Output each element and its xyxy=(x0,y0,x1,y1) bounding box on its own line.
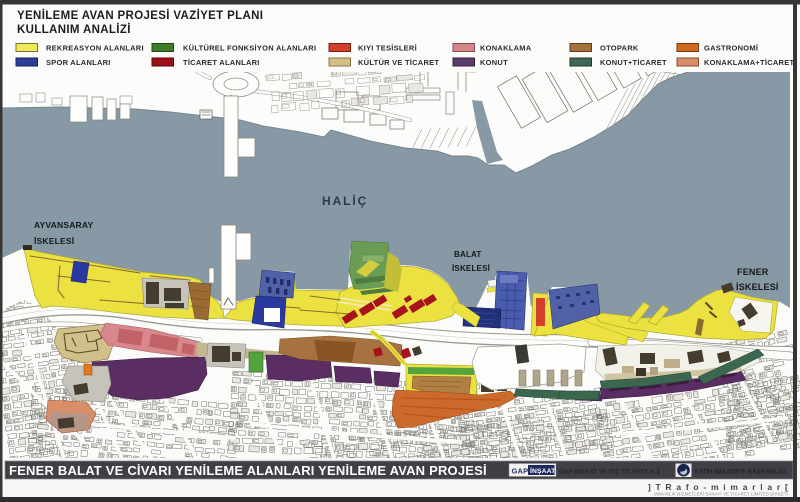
svg-text:KONUT: KONUT xyxy=(480,58,508,67)
svg-text:BALAT: BALAT xyxy=(454,250,482,259)
svg-text:KULLANIM ANALİZİ: KULLANIM ANALİZİ xyxy=(17,23,131,36)
svg-text:İNŞAAT: İNŞAAT xyxy=(530,467,556,475)
svg-text:FATİH BELEDİYE BAŞKANLIĞI: FATİH BELEDİYE BAŞKANLIĞI xyxy=(695,468,787,476)
svg-text:İSKELESİ: İSKELESİ xyxy=(452,264,490,273)
svg-text:GAP İNŞAAT VE DIŞ TİCARET A.Ş: GAP İNŞAAT VE DIŞ TİCARET A.Ş xyxy=(559,469,660,476)
svg-text:İSKELESİ: İSKELESİ xyxy=(736,282,779,292)
svg-text:TİCARET ALANLARI: TİCARET ALANLARI xyxy=(183,58,260,67)
svg-text:KÜLTÜR VE TİCARET: KÜLTÜR VE TİCARET xyxy=(358,58,439,67)
svg-text:KONAKLAMA: KONAKLAMA xyxy=(480,44,532,53)
svg-text:KONAKLAMA+TİCARET: KONAKLAMA+TİCARET xyxy=(704,58,794,67)
svg-text:YENİLEME AVAN PROJESİ VAZİYET: YENİLEME AVAN PROJESİ VAZİYET PLANI xyxy=(17,9,263,22)
svg-text:MİMARLIK HİZMETLERİ SANAYİ VE: MİMARLIK HİZMETLERİ SANAYİ VE TİCARET Lİ… xyxy=(654,492,788,497)
svg-text:] T R a f o - m i m a r l a r: ] T R a f o - m i m a r l a r [ xyxy=(648,482,789,492)
svg-text:KIYI TESİSLERİ: KIYI TESİSLERİ xyxy=(358,44,417,53)
svg-text:GASTRONOMİ: GASTRONOMİ xyxy=(704,44,758,53)
svg-text:GAP: GAP xyxy=(512,467,529,476)
svg-text:SPOR ALANLARI: SPOR ALANLARI xyxy=(46,58,111,67)
svg-text:AYVANSARAY: AYVANSARAY xyxy=(34,220,93,230)
svg-text:OTOPARK: OTOPARK xyxy=(600,44,639,53)
svg-text:KÜLTÜREL FONKSİYON ALANLARI: KÜLTÜREL FONKSİYON ALANLARI xyxy=(183,44,316,53)
svg-text:REKREASYON ALANLARI: REKREASYON ALANLARI xyxy=(46,44,144,53)
svg-text:HALİÇ: HALİÇ xyxy=(322,193,368,208)
svg-text:FENER: FENER xyxy=(737,267,769,277)
svg-text:KONUT+TİCARET: KONUT+TİCARET xyxy=(600,58,667,67)
svg-text:FENER BALAT VE CİVARI YENİLEME: FENER BALAT VE CİVARI YENİLEME ALANLARI … xyxy=(9,463,487,478)
svg-text:İSKELESİ: İSKELESİ xyxy=(34,236,74,246)
